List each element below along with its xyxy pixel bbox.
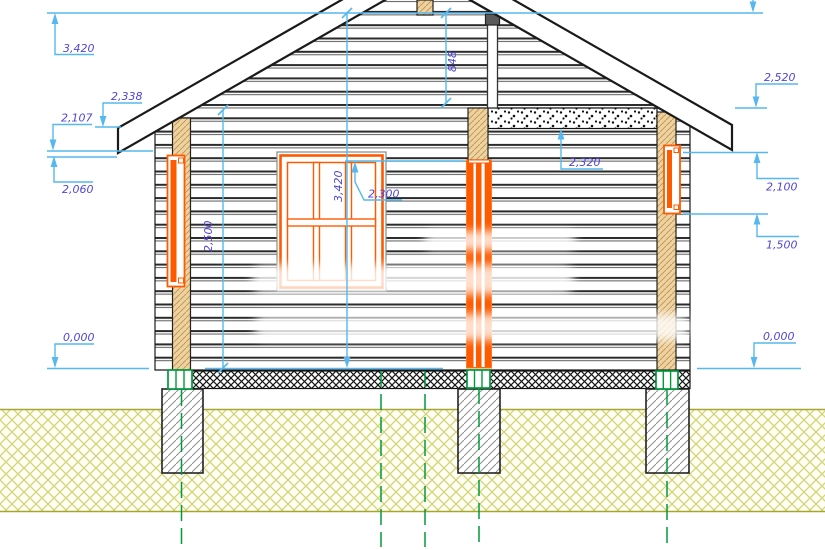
- level-label: 2,338: [111, 90, 143, 103]
- level-label: 0,000: [763, 330, 795, 343]
- dim-label-vertical: 3,420: [332, 171, 345, 203]
- window-transom: [288, 219, 376, 226]
- foundation-pier-left: [162, 389, 203, 473]
- level-label: 2,107: [61, 112, 93, 125]
- elevation-drawing: 3,420 2,338 2,107 2,060 0,000 2,520 2,10…: [0, 0, 825, 550]
- post-center: [468, 108, 488, 160]
- facade-svg: 3,420 2,338 2,107 2,060 0,000 2,520 2,10…: [0, 0, 825, 550]
- level-label: 2,300: [368, 188, 400, 201]
- vent-stack: [486, 14, 500, 108]
- level-label: 2,320: [569, 156, 601, 169]
- level-label: 1,500: [766, 239, 798, 252]
- dim-label-vertical: 2,500: [202, 221, 215, 253]
- ground: [0, 410, 825, 512]
- level-label: 3,420: [63, 42, 95, 55]
- level-label: 2,520: [764, 71, 796, 84]
- dim-label-vertical: 848: [446, 51, 459, 72]
- ceiling-insulation-band: [488, 108, 657, 129]
- level-label: 2,100: [766, 181, 798, 194]
- jack-left: [168, 156, 185, 287]
- floor-joist-band: [192, 371, 690, 389]
- level-label: 2,060: [62, 183, 94, 196]
- level-label: 0,000: [63, 331, 95, 344]
- jack-right: [664, 146, 680, 214]
